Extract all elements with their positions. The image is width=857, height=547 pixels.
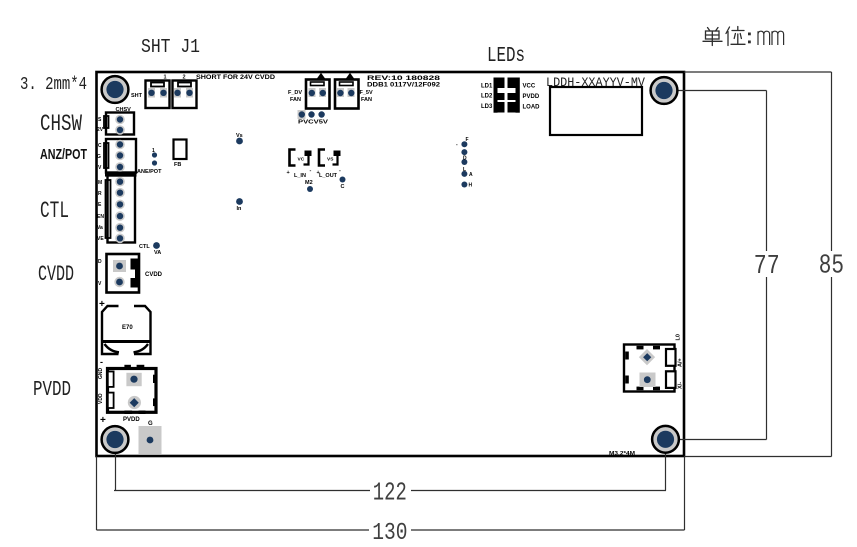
svg-text:VC: VC [298,157,305,163]
svg-text:D: D [463,156,467,162]
svg-text:EN: EN [97,214,104,220]
svg-text:VS: VS [327,157,334,163]
svg-text:A: A [469,172,473,178]
svg-text:VDD: VDD [98,393,104,404]
svg-text:85: 85 [819,251,844,281]
svg-text:Va: Va [97,225,103,231]
svg-text:-: - [310,168,312,174]
svg-text:M2: M2 [305,180,313,186]
svg-text:M3.2*4M: M3.2*4M [609,451,635,457]
svg-text:E70: E70 [122,325,133,331]
svg-text:H: H [469,183,473,189]
svg-text:VA: VA [154,250,161,256]
svg-text:LD1: LD1 [481,84,493,90]
svg-text:PVDD: PVDD [523,94,540,100]
svg-text:F_DV: F_DV [288,90,302,96]
svg-text:CVDD: CVDD [145,272,163,278]
svg-text:D: D [98,259,102,265]
svg-text:F_5V: F_5V [360,90,373,96]
svg-text:2V: 2V [97,127,104,133]
svg-text:FAN: FAN [290,97,301,103]
svg-text:122: 122 [373,478,407,508]
svg-text:LOAD: LOAD [523,105,541,111]
svg-text:CTL: CTL [40,198,69,224]
svg-text:PVDD: PVDD [123,417,140,423]
svg-text:LEDs: LEDs [487,45,525,68]
svg-text:FB: FB [174,162,181,168]
svg-text:VE: VE [97,236,104,242]
svg-text:CVDD: CVDD [38,262,74,287]
svg-text:CHSW: CHSW [40,111,82,137]
svg-text:CTL: CTL [139,244,150,250]
svg-text:In: In [237,206,243,212]
svg-text:SHT J1: SHT J1 [141,36,200,58]
svg-text:A/+: A/+ [678,358,684,367]
svg-text:+: + [287,170,290,176]
svg-text:ANZ/POT: ANZ/POT [40,146,87,163]
svg-text:M: M [98,180,102,186]
svg-text:G: G [97,154,101,160]
svg-text:L0: L0 [676,334,682,340]
svg-text:DDB1 0117V/12F092: DDB1 0117V/12F092 [367,83,441,89]
svg-text:SHORT FOR 24V CVDD: SHORT FOR 24V CVDD [196,75,276,81]
svg-text:LD3: LD3 [481,104,493,110]
svg-text:VCC: VCC [523,84,536,90]
svg-text:PVDD: PVDD [33,379,71,402]
svg-text:-: - [339,168,341,174]
svg-text:C: C [341,184,345,190]
svg-text:130: 130 [372,519,407,547]
svg-text:77: 77 [754,252,780,282]
svg-text:3. 2mm*4: 3. 2mm*4 [20,75,87,95]
svg-text:SHT: SHT [131,93,143,99]
svg-text:+: + [100,415,106,426]
svg-text:C: C [98,143,102,149]
svg-text:L: L [463,167,466,173]
svg-text:X/-: X/- [678,382,684,389]
svg-text:R: R [98,191,102,197]
svg-text:L_OUT: L_OUT [319,173,338,179]
svg-text:FAN: FAN [361,97,372,103]
svg-text:F: F [466,137,469,143]
svg-text:ANE/POT: ANE/POT [137,169,162,175]
svg-text:LD2: LD2 [481,94,493,100]
svg-text:-: - [100,357,103,367]
svg-text:G: G [148,421,153,427]
svg-text:GND: GND [98,368,104,380]
svg-text:PVCV5V: PVCV5V [298,120,328,126]
svg-text:L_IN: L_IN [294,173,306,179]
svg-text:REV:10 180828: REV:10 180828 [367,76,441,82]
